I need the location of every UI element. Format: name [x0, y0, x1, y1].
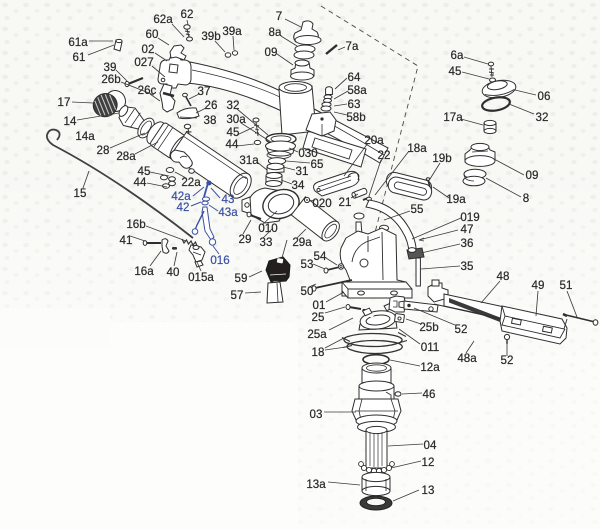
svg-text:44: 44	[134, 176, 147, 189]
svg-text:36: 36	[461, 237, 474, 250]
svg-text:31a: 31a	[239, 154, 259, 167]
svg-text:22a: 22a	[181, 176, 201, 189]
svg-text:02: 02	[142, 43, 155, 56]
svg-text:14a: 14a	[75, 130, 95, 143]
svg-text:65: 65	[311, 158, 324, 171]
svg-text:63: 63	[348, 98, 361, 111]
svg-text:62a: 62a	[153, 13, 173, 26]
svg-text:32: 32	[536, 111, 549, 124]
svg-text:25b: 25b	[419, 321, 438, 334]
svg-text:39b: 39b	[201, 30, 220, 43]
svg-text:30a: 30a	[226, 113, 246, 126]
svg-text:7a: 7a	[346, 40, 359, 53]
svg-text:54: 54	[314, 250, 327, 263]
svg-text:011: 011	[421, 341, 439, 354]
svg-text:18a: 18a	[407, 142, 427, 155]
svg-text:39a: 39a	[222, 25, 242, 38]
svg-text:15: 15	[74, 187, 87, 200]
svg-text:04: 04	[424, 439, 437, 452]
svg-text:020: 020	[312, 197, 331, 210]
svg-text:44: 44	[226, 138, 239, 151]
svg-text:28a: 28a	[116, 150, 136, 163]
svg-text:12: 12	[422, 456, 435, 469]
svg-text:09: 09	[526, 169, 539, 182]
svg-text:010: 010	[258, 222, 277, 235]
svg-text:47: 47	[461, 223, 474, 236]
svg-text:16b: 16b	[126, 218, 145, 231]
svg-text:32: 32	[227, 99, 240, 112]
svg-text:59: 59	[235, 272, 248, 285]
svg-text:14: 14	[64, 115, 77, 128]
svg-text:13a: 13a	[306, 478, 326, 491]
svg-text:20a: 20a	[364, 134, 384, 147]
svg-text:48a: 48a	[457, 352, 477, 365]
svg-text:45: 45	[449, 65, 462, 78]
svg-text:64: 64	[348, 71, 361, 84]
svg-text:57: 57	[231, 289, 244, 302]
svg-text:61: 61	[73, 51, 86, 64]
svg-text:61a: 61a	[68, 36, 88, 49]
svg-text:18: 18	[312, 346, 325, 359]
svg-text:8: 8	[523, 192, 529, 205]
svg-text:027: 027	[134, 56, 153, 69]
svg-text:29: 29	[239, 233, 252, 246]
svg-text:58b: 58b	[346, 111, 365, 124]
svg-text:015a: 015a	[188, 271, 214, 284]
svg-text:16a: 16a	[134, 265, 154, 278]
svg-text:42: 42	[177, 201, 190, 214]
svg-text:48: 48	[497, 270, 510, 283]
svg-text:40: 40	[167, 266, 180, 279]
svg-text:50: 50	[301, 285, 314, 298]
svg-text:17: 17	[58, 96, 71, 109]
svg-text:31: 31	[296, 165, 309, 178]
svg-text:6a: 6a	[451, 49, 464, 62]
svg-text:03: 03	[310, 408, 323, 421]
svg-text:60: 60	[146, 28, 159, 41]
svg-text:52: 52	[455, 323, 468, 336]
svg-text:25: 25	[312, 311, 325, 324]
svg-text:38: 38	[204, 114, 217, 127]
svg-text:29a: 29a	[292, 236, 312, 249]
svg-text:58a: 58a	[347, 84, 367, 97]
svg-text:12a: 12a	[420, 361, 440, 374]
svg-text:52: 52	[501, 354, 514, 367]
svg-text:22: 22	[378, 149, 391, 162]
svg-text:26c: 26c	[138, 84, 157, 97]
svg-text:55: 55	[411, 203, 424, 216]
svg-text:19a: 19a	[446, 193, 466, 206]
svg-text:25a: 25a	[307, 328, 327, 341]
svg-text:51: 51	[560, 279, 573, 292]
svg-text:46: 46	[423, 388, 436, 401]
svg-text:7: 7	[276, 10, 282, 23]
svg-text:49: 49	[532, 279, 545, 292]
svg-text:09: 09	[265, 46, 278, 59]
svg-text:26: 26	[205, 99, 218, 112]
svg-text:37: 37	[198, 85, 211, 98]
svg-text:28: 28	[97, 144, 110, 157]
svg-text:8a: 8a	[269, 26, 282, 39]
svg-text:33: 33	[260, 236, 273, 249]
svg-text:53: 53	[301, 258, 314, 271]
svg-text:35: 35	[461, 260, 474, 273]
svg-text:26b: 26b	[101, 73, 120, 86]
svg-text:43a: 43a	[218, 206, 238, 219]
svg-text:06: 06	[538, 90, 551, 103]
svg-text:43: 43	[222, 193, 235, 206]
svg-text:19b: 19b	[432, 152, 451, 165]
svg-text:41: 41	[120, 234, 133, 247]
svg-text:17a: 17a	[443, 111, 463, 124]
svg-text:62: 62	[181, 8, 194, 21]
svg-text:34: 34	[292, 179, 305, 192]
svg-text:016: 016	[210, 254, 229, 267]
svg-text:21: 21	[339, 196, 352, 209]
svg-text:13: 13	[422, 484, 435, 497]
